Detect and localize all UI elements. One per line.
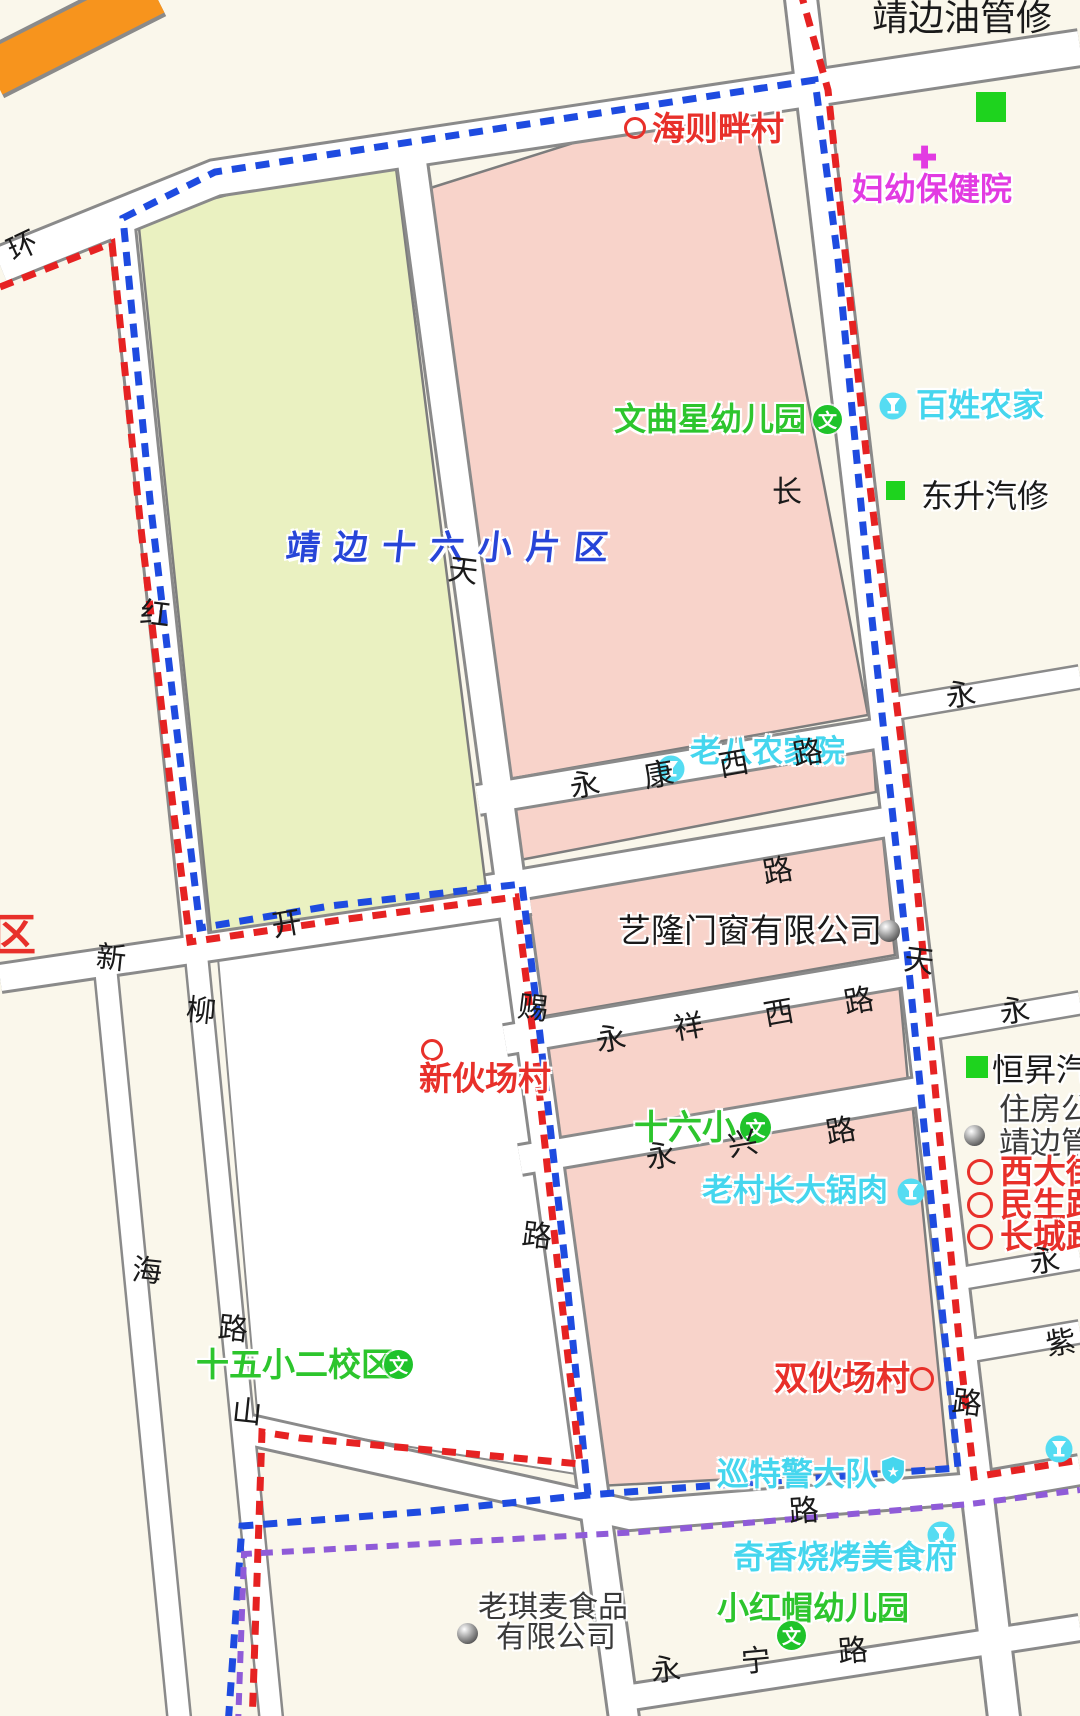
- poi-xunte-police[interactable]: 巡特警大队: [717, 1458, 877, 1490]
- company-ball-icon: [457, 1623, 478, 1644]
- road-yongxiang-char: 祥: [672, 1011, 707, 1046]
- village-ring-icon: [624, 117, 646, 139]
- village-ring-icon: [421, 1039, 443, 1061]
- road-char-xin: 新: [95, 943, 128, 976]
- neighbor-district-label: 区: [0, 914, 36, 958]
- hospital-cross-icon: ✚: [912, 144, 937, 174]
- road-char-huan: 环: [3, 227, 43, 267]
- road-yongkang-char: 康: [642, 759, 677, 794]
- road-char-kai: 开: [270, 908, 305, 943]
- village-ring-icon: [910, 1367, 934, 1391]
- poi-zhufang-line1[interactable]: 住房公: [999, 1094, 1080, 1125]
- road-char-tian: 天: [902, 945, 935, 978]
- road-char-hai: 海: [131, 1256, 164, 1289]
- label-layer: 靖边油管修 海则畔村 ✚ 妇幼保健院 文曲星幼儿园 文 百姓农家 东升汽修 靖边…: [0, 0, 1080, 1716]
- poi-yilong-company[interactable]: 艺隆门窗有限公司: [618, 914, 882, 947]
- road-char-liu: 柳: [185, 996, 218, 1029]
- road-char-hong: 红: [138, 598, 171, 631]
- road-char-zi: 紫: [1044, 1327, 1078, 1361]
- poi-laoqimai-line2[interactable]: 有限公司: [496, 1623, 616, 1653]
- village-ring-icon: [967, 1224, 993, 1250]
- road-yongxing-char: 路: [824, 1115, 859, 1150]
- poi-wenquxing-kindergarten[interactable]: 文曲星幼儿园: [614, 403, 806, 435]
- school-badge-icon: 文: [777, 1621, 806, 1650]
- road-char-chang: 长: [772, 478, 802, 508]
- road-char-shan: 山: [231, 1397, 264, 1430]
- poi-shiliuxiao-school[interactable]: 十六小: [634, 1111, 736, 1145]
- poi-hengsheng[interactable]: 恒昇汽: [992, 1054, 1080, 1086]
- road-char-tian: 天: [446, 555, 479, 588]
- road-char-lu: 路: [761, 855, 796, 890]
- poi-baixing-farmhouse[interactable]: 百姓农家: [916, 389, 1044, 421]
- poi-shiwuxiao-school[interactable]: 十五小二校区: [196, 1348, 394, 1381]
- company-ball-icon: [878, 920, 900, 942]
- road-yongxiang-char: 西: [762, 997, 797, 1032]
- poi-xiaohongmao-kindergarten[interactable]: 小红帽幼儿园: [717, 1592, 909, 1624]
- road-char-lu: 路: [520, 1220, 553, 1253]
- poi-minsheng[interactable]: 民生路: [1000, 1188, 1080, 1221]
- road-char-yong: 永: [1028, 1245, 1062, 1279]
- poi-laoqimai-line1[interactable]: 老琪麦食品: [478, 1593, 628, 1623]
- road-yongxiang-char: 路: [842, 985, 877, 1020]
- building-marker-icon: [966, 1056, 988, 1078]
- village-ring-icon: [967, 1192, 993, 1218]
- road-char-lu: 路: [217, 1314, 250, 1347]
- company-ball-icon: [964, 1125, 985, 1146]
- road-char-yong: 永: [944, 679, 978, 713]
- poi-xinhuochang-village[interactable]: 新伙场村: [419, 1062, 551, 1095]
- road-yongkang-char: 路: [791, 737, 826, 772]
- map-canvas[interactable]: 靖边油管修 海则畔村 ✚ 妇幼保健院 文曲星幼儿园 文 百姓农家 东升汽修 靖边…: [0, 0, 1080, 1716]
- building-marker-icon: [886, 481, 905, 500]
- poi-fuyou-hospital[interactable]: 妇幼保健院: [852, 173, 1012, 205]
- road-yongkang-char: 西: [717, 748, 752, 783]
- poi-haizeban-village[interactable]: 海则畔村: [652, 112, 784, 145]
- road-yongxing-char: 永: [644, 1140, 679, 1175]
- road-char-ci: 赐: [516, 992, 549, 1025]
- star-glyph: ★: [887, 1463, 899, 1479]
- poi-laocunzhang-restaurant[interactable]: 老村长大锅肉: [702, 1175, 888, 1206]
- poi-dongsheng-repair[interactable]: 东升汽修: [921, 480, 1049, 512]
- poi-shuanghuochang-village[interactable]: 双伙场村: [774, 1362, 910, 1396]
- poi-xidajie[interactable]: 西大街: [1000, 1155, 1080, 1188]
- poi-qixiang-bbq[interactable]: 奇香烧烤美食府: [733, 1541, 957, 1573]
- road-char-lu: 路: [950, 1387, 983, 1420]
- road-yongkang-char: 永: [568, 769, 603, 804]
- road-char-lu: 路: [788, 1496, 820, 1528]
- road-yongning-char: 宁: [740, 1646, 773, 1679]
- school-badge-icon: 文: [384, 1350, 413, 1379]
- road-yongxiang-char: 永: [594, 1023, 629, 1058]
- road-yongxing-char: 兴: [726, 1128, 761, 1163]
- road-yongning-char: 路: [837, 1636, 870, 1669]
- road-yongning-char: 永: [650, 1655, 683, 1688]
- school-badge-icon: 文: [813, 405, 842, 434]
- building-marker-icon: [976, 92, 1006, 122]
- poi-jingbian-oil[interactable]: 靖边油管修: [872, 0, 1052, 36]
- village-ring-icon: [967, 1159, 993, 1185]
- road-char-yong: 永: [998, 995, 1032, 1029]
